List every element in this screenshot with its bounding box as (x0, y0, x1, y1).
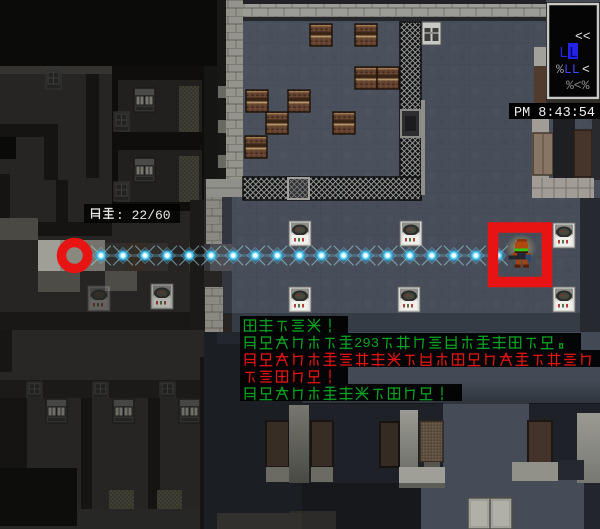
svg-text:<: < (582, 62, 590, 77)
svg-text:L: L (559, 45, 568, 62)
svg-text:<<: << (575, 29, 591, 44)
svg-text:%<%: %<% (566, 78, 590, 93)
svg-text:LL: LL (564, 62, 580, 77)
svg-text:PM 8:43:54: PM 8:43:54 (514, 106, 595, 121)
svg-text:293: 293 (354, 336, 379, 352)
svg-text:: 22/60: : 22/60 (116, 208, 171, 223)
svg-text:L: L (569, 45, 578, 62)
svg-text:%: % (556, 62, 564, 77)
